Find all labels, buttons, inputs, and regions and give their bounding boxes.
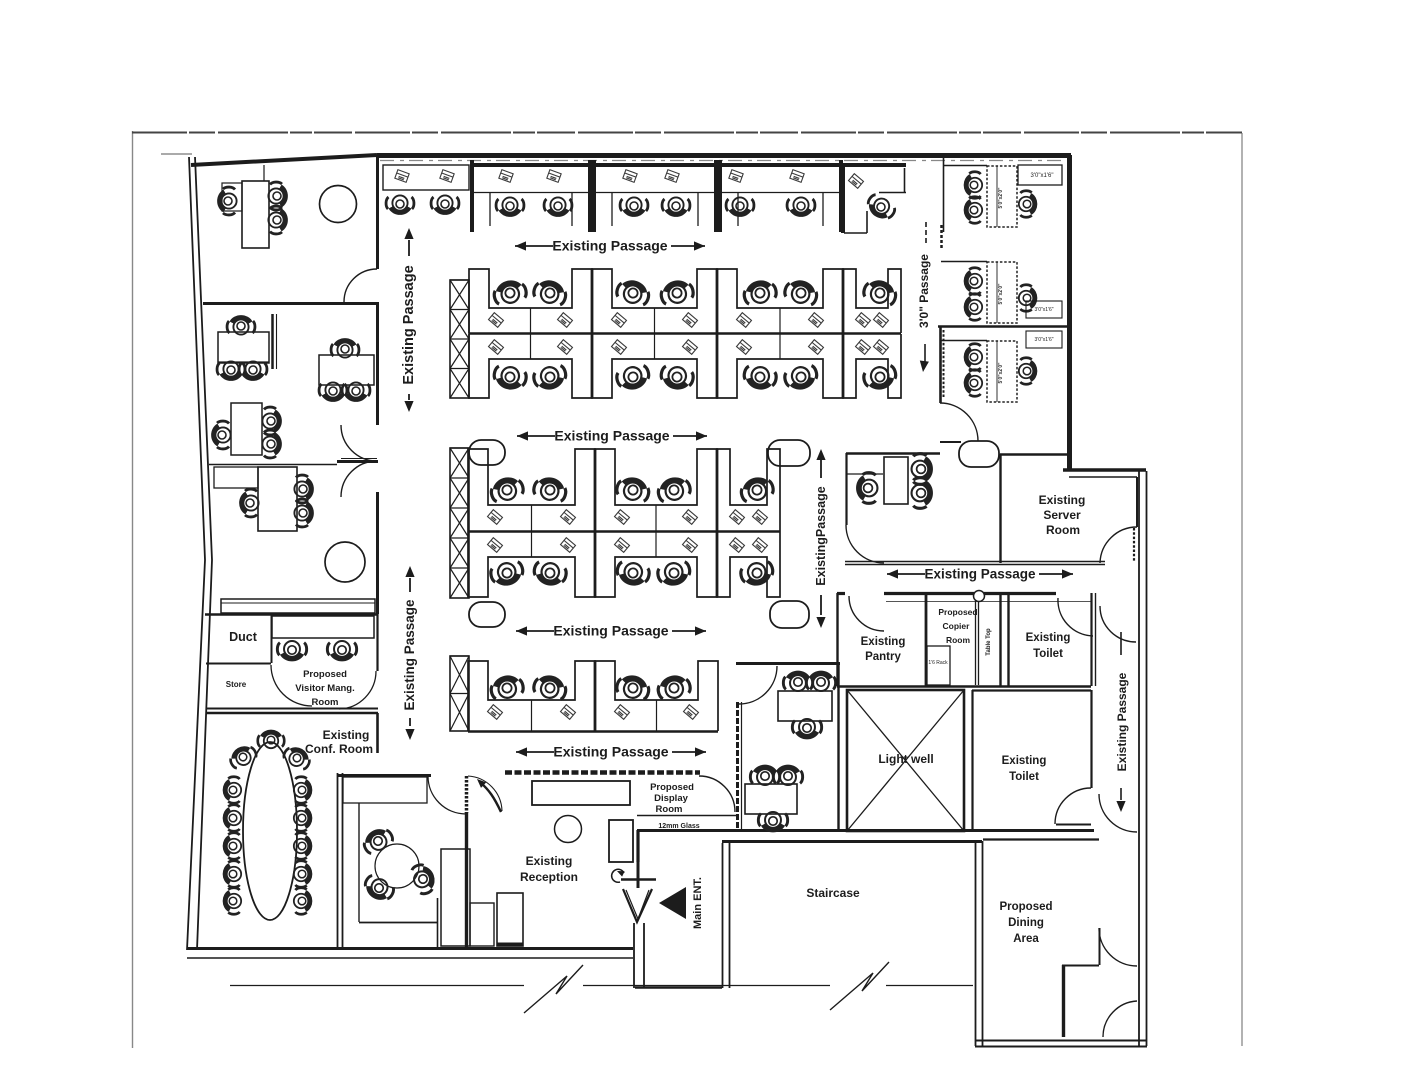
svg-text:Room: Room <box>1046 523 1080 537</box>
svg-text:Server: Server <box>1043 508 1081 522</box>
svg-text:Copier: Copier <box>943 621 971 631</box>
svg-text:Table Top: Table Top <box>986 628 992 656</box>
svg-text:5'0"x2'0": 5'0"x2'0" <box>998 187 1004 209</box>
svg-text:Visitor Mang.: Visitor Mang. <box>295 683 354 694</box>
svg-text:Proposed: Proposed <box>938 607 977 617</box>
svg-text:Staircase: Staircase <box>806 886 860 900</box>
svg-text:5'0"x2'0": 5'0"x2'0" <box>998 283 1004 305</box>
svg-text:Pantry: Pantry <box>865 651 901 663</box>
svg-text:Existing: Existing <box>526 854 573 868</box>
svg-text:5'0"x2'0": 5'0"x2'0" <box>998 362 1004 384</box>
svg-text:ExistingPassage: ExistingPassage <box>814 486 828 585</box>
svg-text:3'0"x1'6": 3'0"x1'6" <box>1034 307 1053 313</box>
svg-text:12mm Glass: 12mm Glass <box>658 823 699 830</box>
svg-text:Room: Room <box>656 804 683 815</box>
svg-text:Duct: Duct <box>229 630 258 644</box>
svg-text:Existing Passage: Existing Passage <box>552 238 667 254</box>
svg-text:Existing: Existing <box>323 728 370 742</box>
svg-text:Proposed: Proposed <box>650 782 694 793</box>
svg-text:Existing Passage: Existing Passage <box>1115 672 1129 771</box>
svg-text:Existing Passage: Existing Passage <box>554 428 669 444</box>
svg-text:Reception: Reception <box>520 870 578 884</box>
svg-text:Display: Display <box>654 793 689 804</box>
svg-text:Room: Room <box>312 697 339 708</box>
svg-text:Main ENT.: Main ENT. <box>692 877 704 929</box>
svg-text:Existing: Existing <box>1039 493 1086 507</box>
svg-text:Existing Passage: Existing Passage <box>924 567 1036 582</box>
svg-text:Room: Room <box>946 635 971 645</box>
svg-text:Toilet: Toilet <box>1033 648 1063 660</box>
svg-text:3'0"x1'6": 3'0"x1'6" <box>1034 337 1053 343</box>
svg-text:Proposed: Proposed <box>999 901 1052 913</box>
svg-text:Existing Passage: Existing Passage <box>553 623 668 639</box>
svg-text:Existing Passage: Existing Passage <box>401 265 417 384</box>
svg-text:Proposed: Proposed <box>303 669 347 680</box>
svg-text:Existing: Existing <box>1002 755 1047 767</box>
svg-text:Existing: Existing <box>861 636 906 648</box>
svg-text:Conf. Room: Conf. Room <box>305 742 373 756</box>
svg-text:3'0"x1'6": 3'0"x1'6" <box>1031 173 1054 179</box>
svg-text:Existing: Existing <box>1026 632 1071 644</box>
svg-text:1'6 Rack: 1'6 Rack <box>928 660 948 666</box>
svg-text:Existing Passage: Existing Passage <box>402 599 417 711</box>
svg-text:Dining: Dining <box>1008 917 1044 929</box>
svg-text:Existing Passage: Existing Passage <box>553 744 668 760</box>
svg-text:Store: Store <box>226 680 247 689</box>
svg-text:Light well: Light well <box>878 752 933 766</box>
svg-text:Toilet: Toilet <box>1009 771 1039 783</box>
svg-text:3'0" Passage: 3'0" Passage <box>917 254 931 328</box>
svg-text:Area: Area <box>1013 933 1039 945</box>
